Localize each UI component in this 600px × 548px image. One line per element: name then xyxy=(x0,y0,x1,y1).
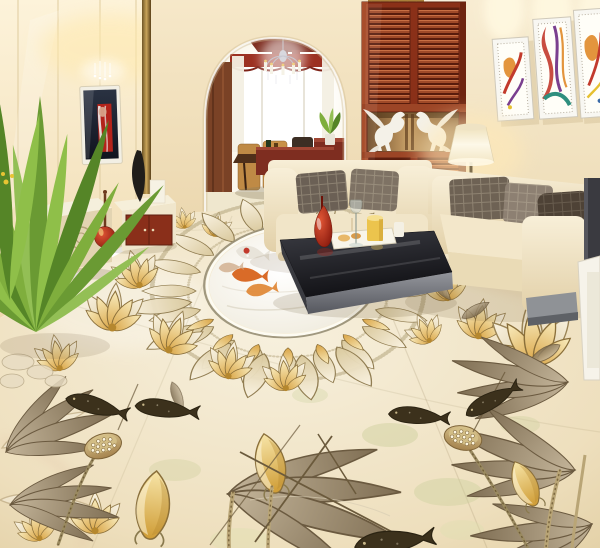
scene-canvas xyxy=(0,0,600,548)
wall-sconce xyxy=(81,59,125,83)
louver-door xyxy=(418,8,459,106)
living-room-photo xyxy=(0,0,600,548)
lamp-shade xyxy=(448,127,494,162)
plaid-pillow xyxy=(449,176,511,221)
sheer-curtain-left xyxy=(232,56,244,152)
yellow-candle xyxy=(367,215,383,241)
white-cup xyxy=(394,222,404,237)
abstract-painting-1 xyxy=(492,36,539,127)
